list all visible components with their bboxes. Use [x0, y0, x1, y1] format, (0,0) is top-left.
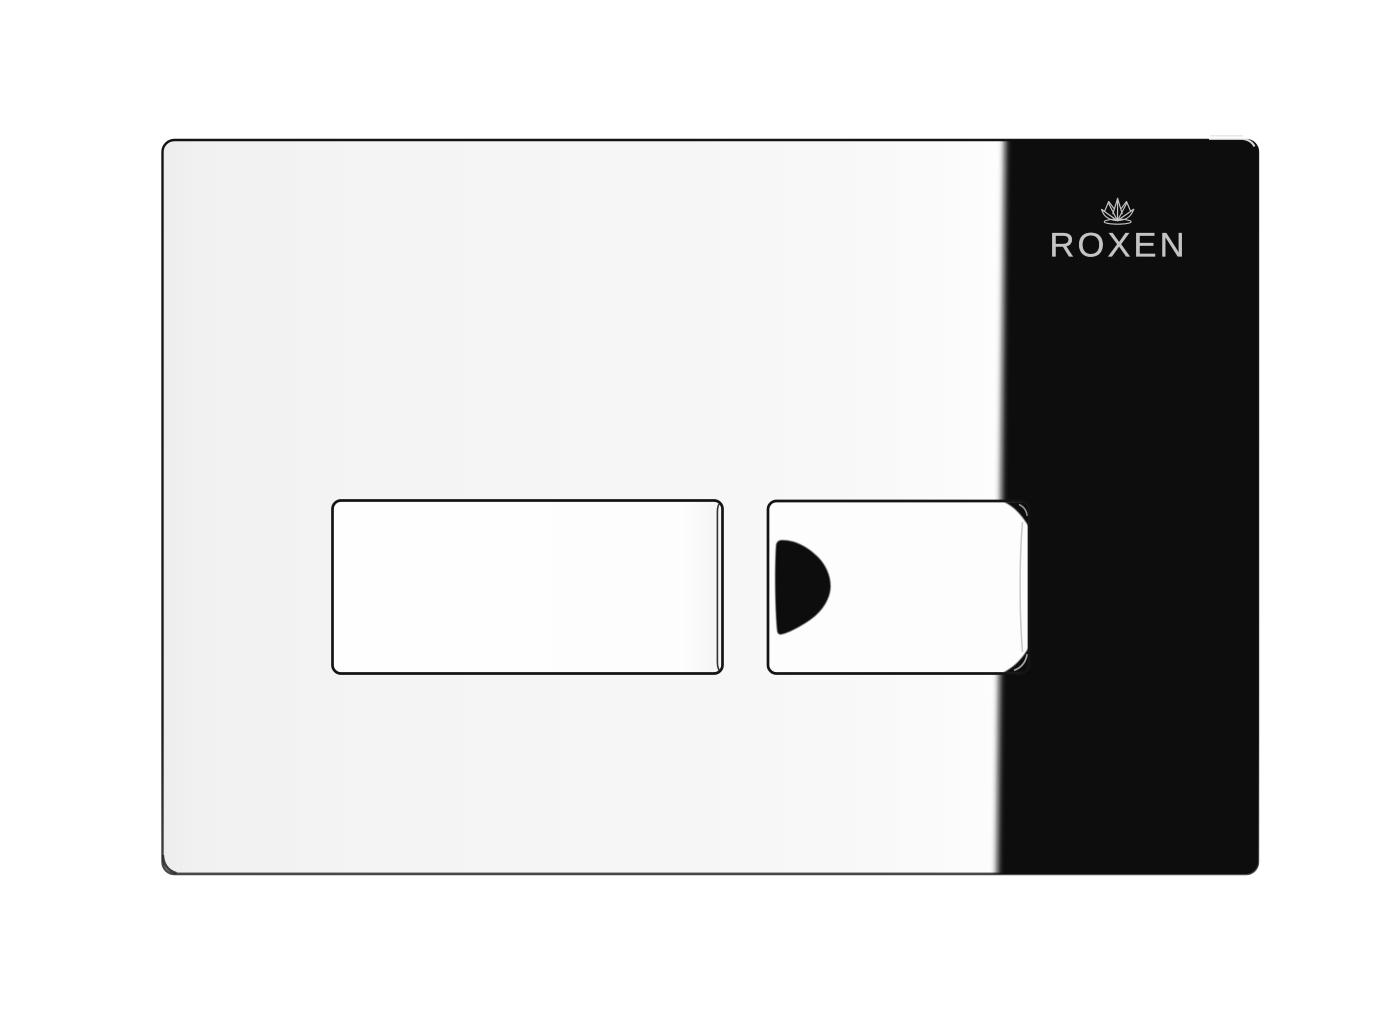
svg-text:ROXEN: ROXEN — [1050, 227, 1188, 265]
